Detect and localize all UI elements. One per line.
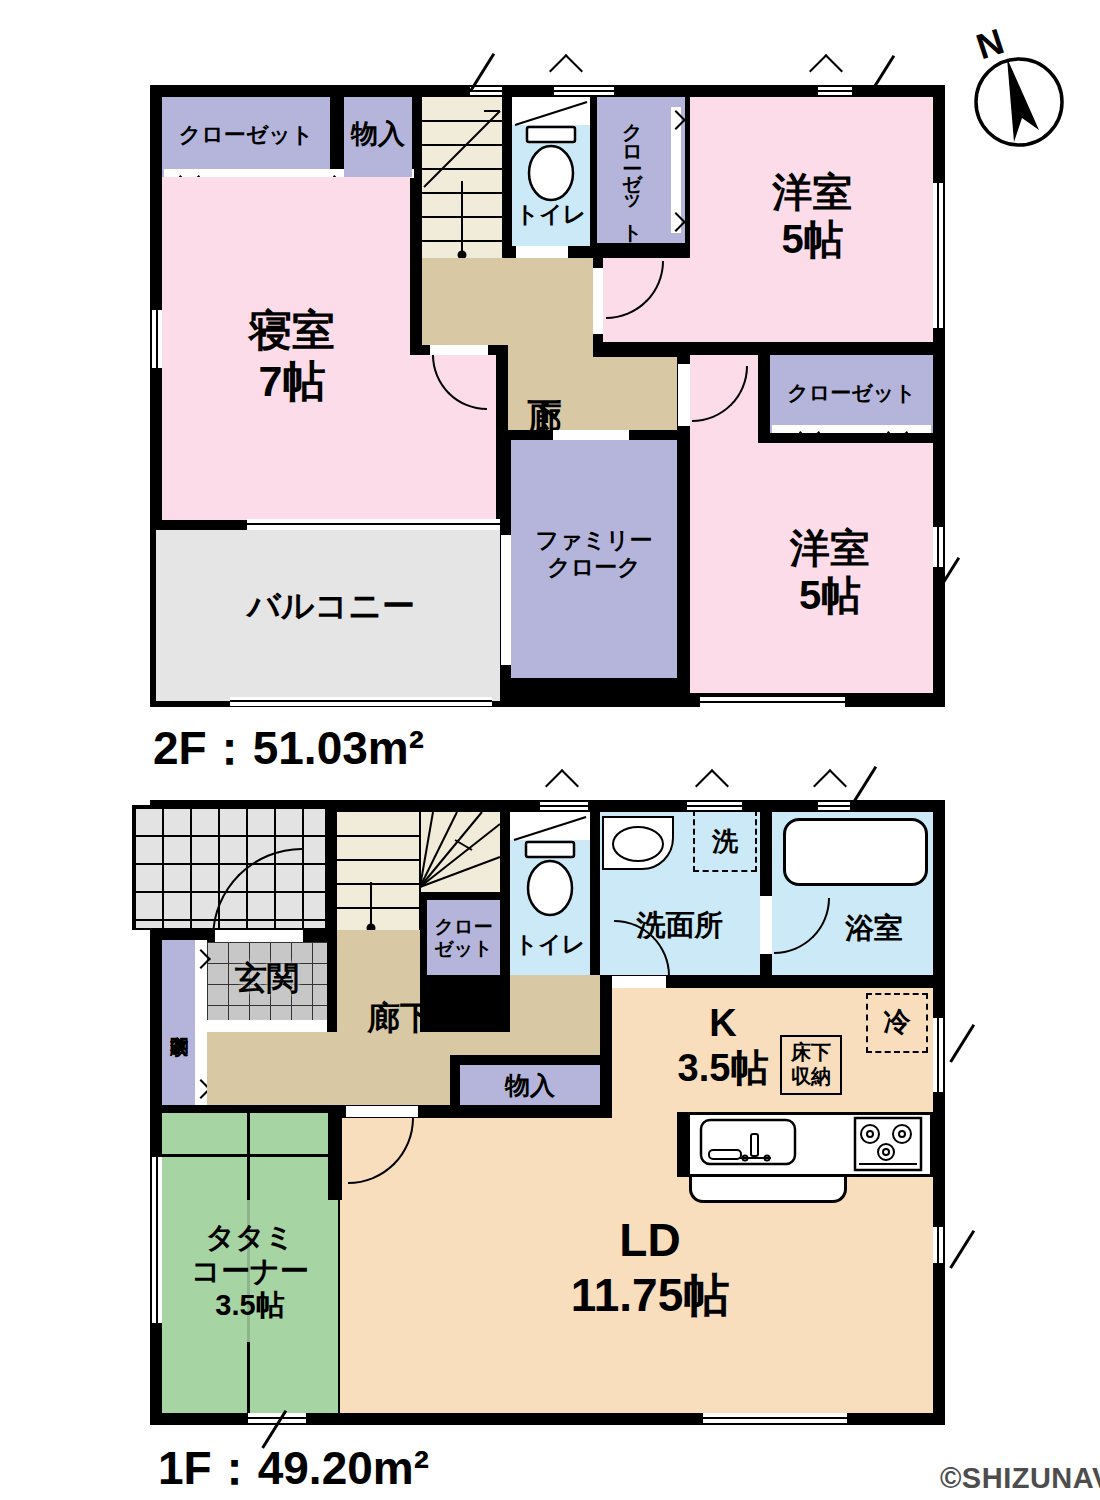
sliding-window <box>247 519 500 530</box>
room-label: 寝室 7帖 <box>202 297 382 415</box>
room-label: 玄関 <box>212 950 322 1008</box>
underfloor-storage-label: 床下 収納 <box>791 1041 831 1088</box>
wall-tick-mark <box>949 1230 974 1269</box>
kitchen-counter-icons <box>687 1112 933 1177</box>
room-label: トイレ <box>506 932 594 958</box>
wall-tick-mark <box>813 769 847 803</box>
wall-tick-mark <box>949 1024 974 1063</box>
window <box>818 87 852 95</box>
stairs-2f-treads <box>422 97 502 261</box>
refrigerator-space: 冷 <box>866 993 928 1053</box>
window <box>501 535 511 665</box>
room-label: 玄関収納 <box>162 950 195 1098</box>
door-opening <box>593 268 603 334</box>
door-opening <box>612 976 666 988</box>
wall-tick-mark <box>469 53 494 92</box>
floor-plan-page: クローゼット 物入 DN トイレ ク <box>0 0 1100 1500</box>
washer-space: 洗 <box>693 810 757 872</box>
floor1-plan: 玄関 玄関収納 UP クロー ゼット <box>150 800 945 1425</box>
door-opening <box>760 896 772 954</box>
compass-north-label: N <box>971 20 1008 67</box>
room-label: ファミリー クローク <box>516 523 672 585</box>
window <box>933 1018 943 1092</box>
wall-tick-mark <box>851 766 876 805</box>
window <box>540 802 588 810</box>
door-opening <box>678 364 690 426</box>
window <box>554 87 614 95</box>
wall <box>450 1055 602 1065</box>
window <box>700 697 845 707</box>
door-opening <box>430 344 488 355</box>
counter-wall-stub <box>677 1112 687 1177</box>
wall <box>328 1113 342 1200</box>
window <box>933 183 943 328</box>
window <box>933 527 943 567</box>
entrance-step <box>207 1020 327 1032</box>
room-label: バルコニー <box>246 583 416 629</box>
door-opening <box>346 1106 418 1117</box>
wall-tick-mark <box>545 769 579 803</box>
window <box>703 1413 847 1423</box>
room-label: クロー ゼット <box>427 908 500 968</box>
room-label: LD 11.75帖 <box>540 1190 760 1345</box>
room-label: 浴室 <box>818 910 930 946</box>
room-label: トイレ <box>512 203 590 227</box>
room-label: タタミ コーナー 3.5帖 <box>177 1200 323 1342</box>
room-label: 物入 <box>344 105 412 165</box>
wall-tick-mark <box>869 55 894 94</box>
room-label: クローゼット <box>164 105 328 165</box>
wall-tick-mark <box>695 769 729 803</box>
compass-icon: N <box>963 22 1075 152</box>
door-opening <box>553 430 629 440</box>
door-opening <box>516 246 568 258</box>
wall <box>450 1055 460 1105</box>
window <box>687 802 742 810</box>
toilet-icon <box>512 814 588 926</box>
room-label: 廊下 <box>353 996 447 1040</box>
window <box>470 87 502 95</box>
bathtub-icon <box>783 818 928 886</box>
watermark: ©SHIZUNAVI <box>940 1462 1100 1495</box>
room-label: 洋室 5帖 <box>750 513 910 631</box>
room-label: K 3.5帖 <box>663 996 783 1096</box>
window <box>933 1227 943 1263</box>
balcony-rail-window <box>230 697 492 706</box>
washer-label: 洗 <box>712 826 738 857</box>
sink-basin-icon <box>612 826 664 862</box>
room-label: クローゼット <box>772 365 931 421</box>
tatami-seam <box>162 1154 338 1157</box>
floor2-area-label: 2F：51.03m² <box>153 718 424 780</box>
wall-tick-mark <box>809 54 843 88</box>
room-label: 洋室 5帖 <box>740 157 885 275</box>
toilet-icon <box>513 99 589 215</box>
room-label: クローゼット <box>600 103 664 239</box>
window <box>818 802 850 810</box>
floor2-plan: クローゼット 物入 DN トイレ ク <box>150 85 945 707</box>
wall-tick-mark <box>549 54 583 88</box>
floor1-area-label: 1F：49.20m² <box>158 1438 429 1500</box>
window <box>152 1157 162 1323</box>
refrigerator-label: 冷 <box>884 1007 911 1039</box>
window <box>152 310 162 368</box>
room-label: 廊下 <box>522 328 568 418</box>
room-label: 物入 <box>460 1068 600 1104</box>
underfloor-storage-box: 床下 収納 <box>780 1035 842 1095</box>
